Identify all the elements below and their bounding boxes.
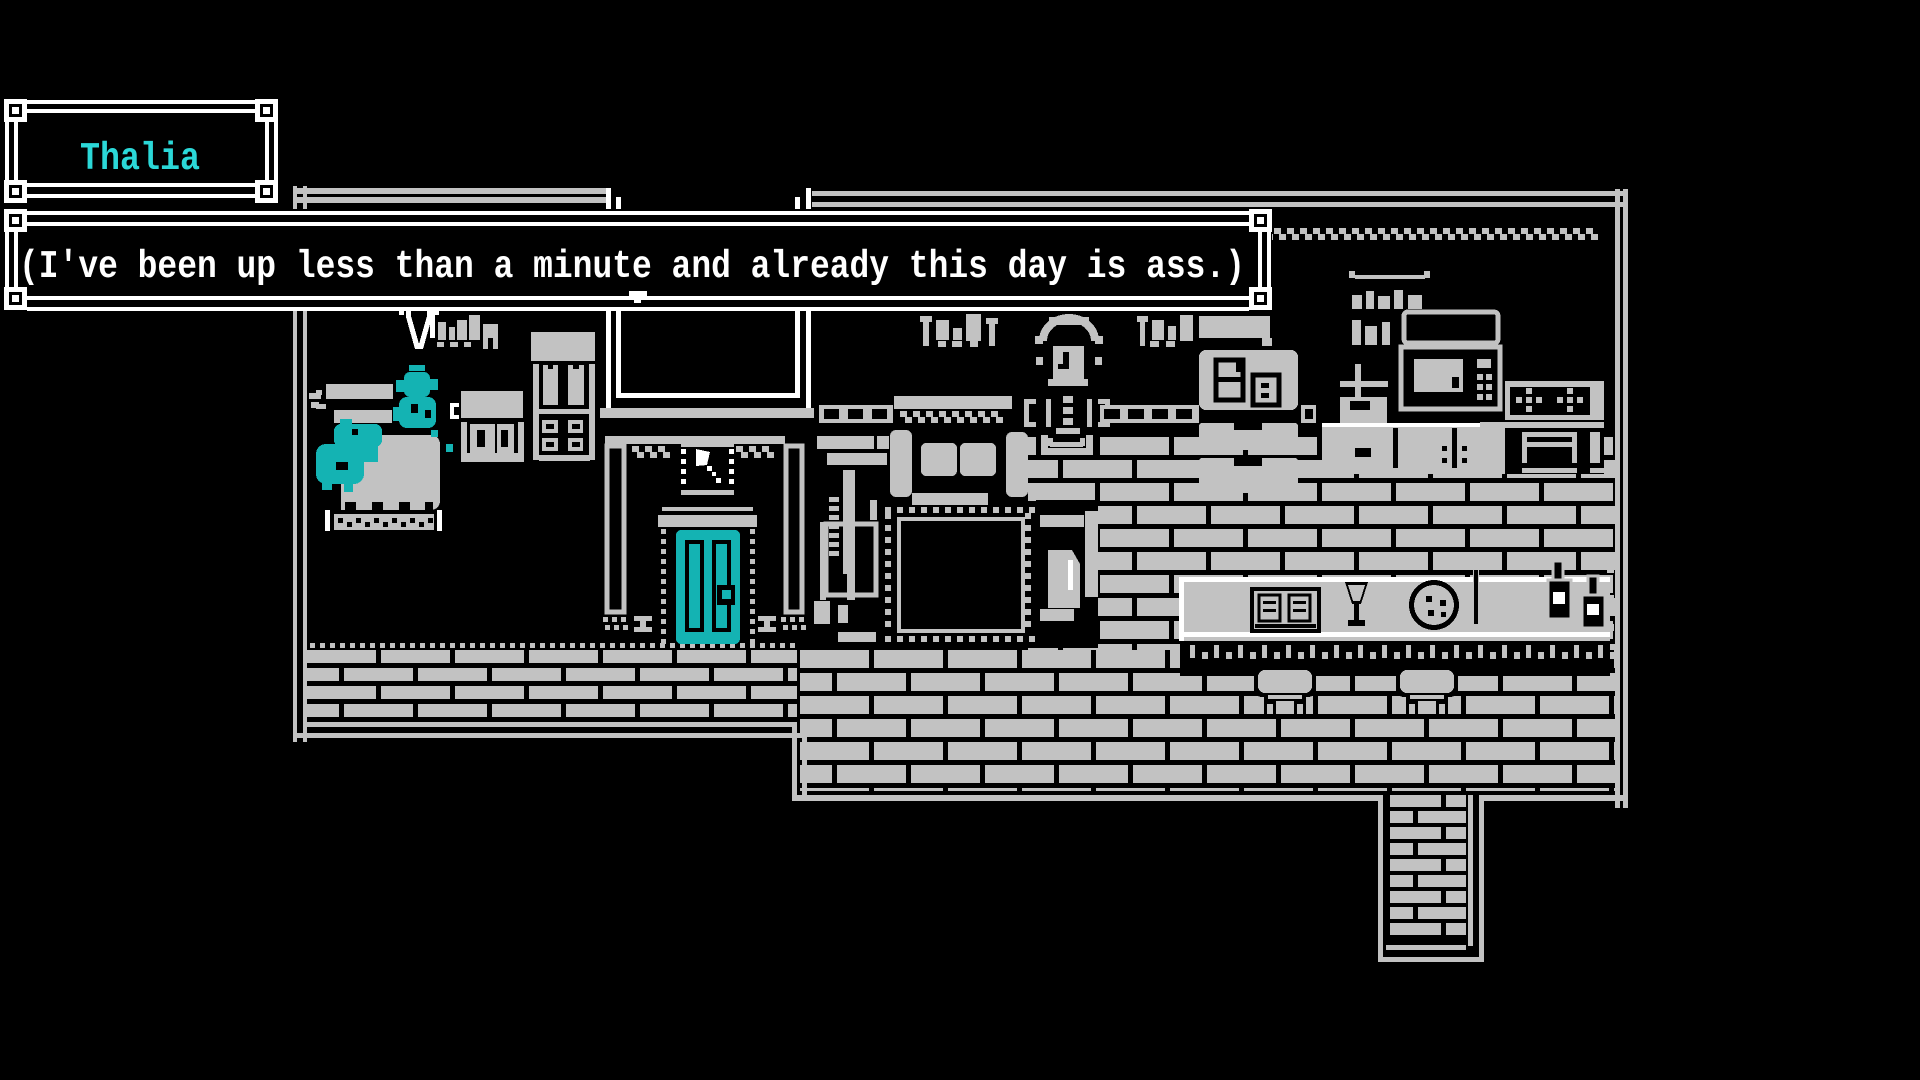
svg-text:(I've been up less than a minu: (I've been up less than a minute and alr… bbox=[19, 245, 1245, 289]
svg-text:Thalia: Thalia bbox=[80, 137, 200, 181]
